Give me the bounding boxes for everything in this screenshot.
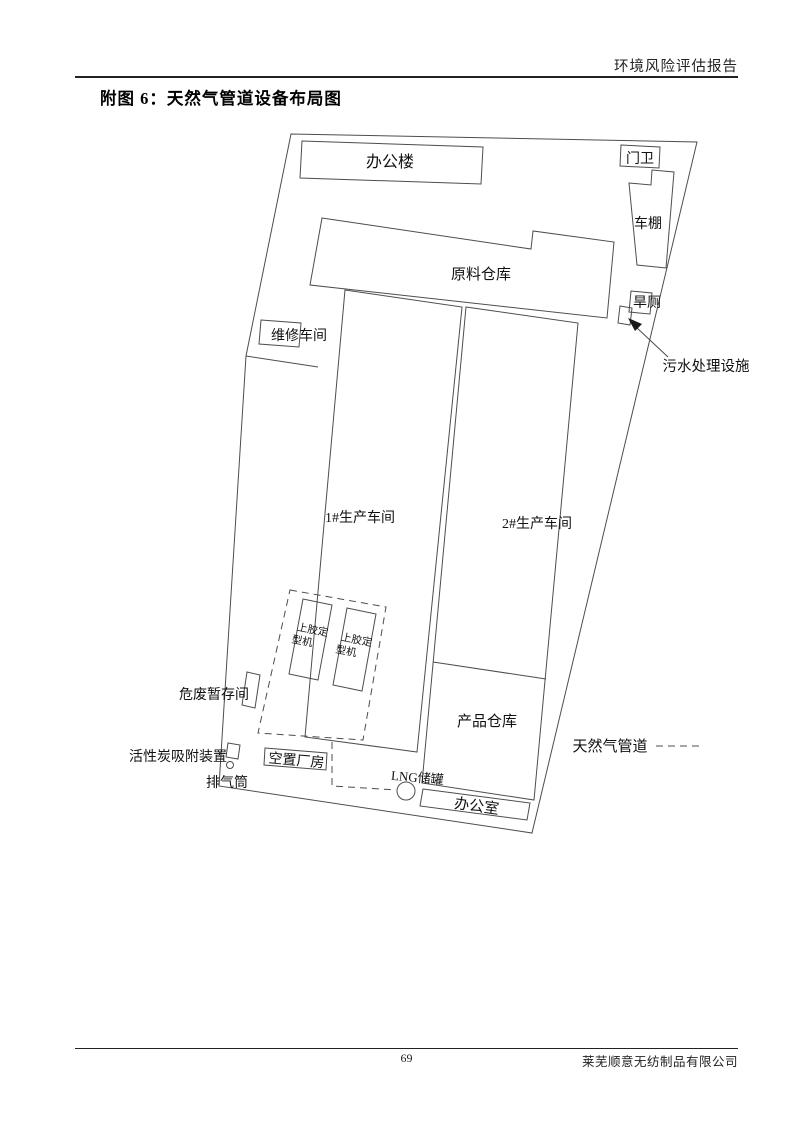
- sewage-treatment-label: 污水处理设施: [663, 358, 750, 375]
- workshop-2-label: 2#生产车间: [502, 515, 572, 532]
- gate-guard-label: 门卫: [626, 151, 654, 167]
- raw-material-warehouse-label: 原料仓库: [451, 266, 511, 283]
- lng-tank-label: LNG储罐: [390, 768, 444, 788]
- workshop-1-label: 1#生产车间: [325, 509, 395, 526]
- exhaust-stack-label: 排气筒: [206, 774, 248, 791]
- product-warehouse-label: 产品仓库: [457, 713, 517, 730]
- carport-label: 车棚: [634, 215, 662, 232]
- company-name: 莱芜顺意无纺制品有限公司: [582, 1051, 738, 1070]
- exhaust-stack-circle: [227, 762, 234, 769]
- boundary-step-wall: [246, 356, 318, 367]
- site-layout-diagram: 办公楼 门卫 车棚 原料仓库 维修车间 旱厕 污水处理设施 1#生产车间 2#生…: [0, 0, 800, 1131]
- vacant-building-label: 空置厂房: [268, 751, 325, 772]
- page-number: 69: [401, 1051, 413, 1066]
- footer-rule: [75, 1048, 738, 1049]
- sewage-treatment-outline: [618, 306, 632, 325]
- report-page: 环境风险评估报告 附图 6：天然气管道设备布局图 办公楼 门卫 车棚 原料仓库 …: [0, 0, 800, 1131]
- gas-pipeline-dashed-line: [332, 742, 396, 790]
- maintenance-workshop-label: 维修车间: [271, 327, 327, 344]
- activated-carbon-device-label: 活性炭吸附装置: [129, 749, 227, 765]
- gas-pipeline-legend-label: 天然气管道: [572, 738, 647, 755]
- office-building-label: 办公楼: [366, 153, 414, 171]
- lng-tank-circle: [397, 782, 415, 800]
- activated-carbon-device-outline: [226, 743, 240, 759]
- dry-toilet-label: 旱厕: [633, 296, 661, 311]
- workshop-2-divider: [433, 662, 546, 679]
- page-footer: 69 莱芜顺意无纺制品有限公司: [75, 1051, 738, 1071]
- hazardous-waste-room-label: 危废暂存间: [179, 687, 249, 703]
